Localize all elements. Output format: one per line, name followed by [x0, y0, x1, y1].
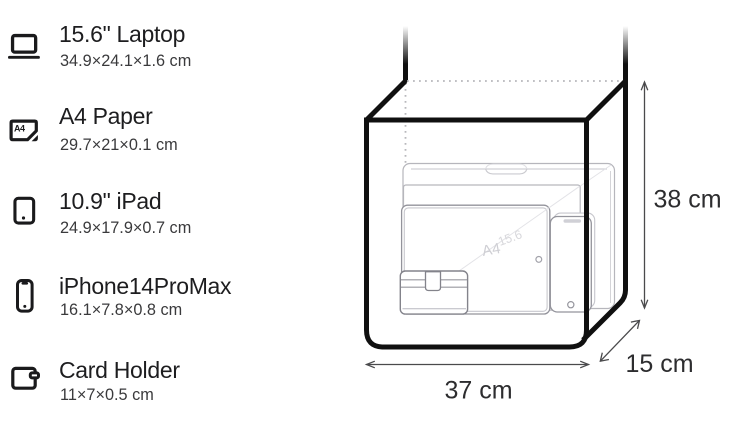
svg-text:37 cm: 37 cm [445, 377, 513, 405]
svg-text:15 cm: 15 cm [626, 350, 694, 378]
svg-text:38 cm: 38 cm [654, 186, 722, 214]
